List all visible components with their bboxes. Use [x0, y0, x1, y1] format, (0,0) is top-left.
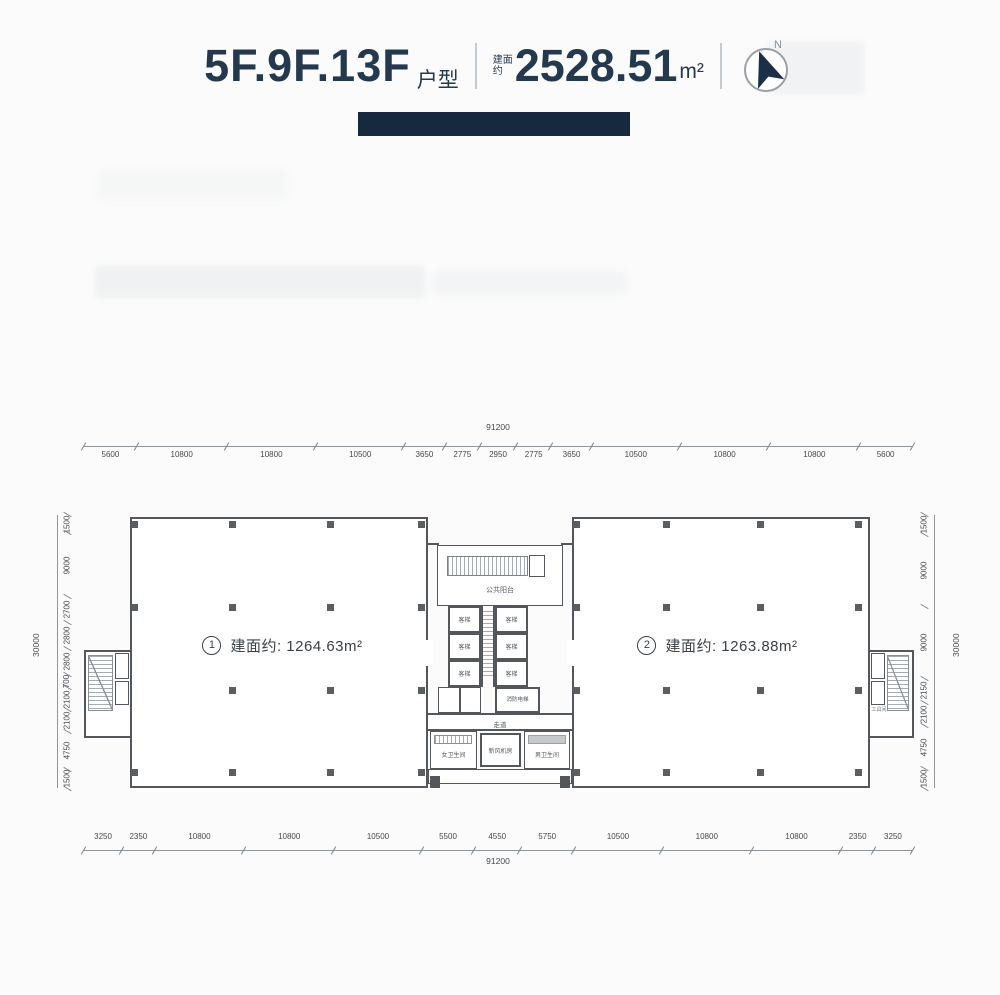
structural-column	[757, 604, 764, 611]
dimension-segment: 10800	[155, 832, 245, 841]
womens-restroom: 女卫生间	[430, 731, 477, 769]
stair-shaft-wall	[493, 606, 495, 687]
structural-column	[229, 687, 236, 694]
toilet-stalls	[528, 735, 566, 744]
pilaster	[560, 776, 570, 788]
dimension-segment: 3250	[874, 832, 912, 841]
mens-restroom-label: 男卫生间	[525, 750, 569, 759]
dimension-segment: 10500	[574, 832, 662, 841]
public-balcony: 公共阳台	[437, 545, 563, 606]
corridor: 走道	[428, 713, 572, 731]
structural-column	[855, 604, 862, 611]
dimension-segment: 10800	[752, 832, 842, 841]
north-compass-icon: N	[738, 37, 796, 95]
structural-column	[327, 769, 334, 776]
utility-room	[460, 687, 481, 713]
structural-column	[855, 769, 862, 776]
structural-column	[418, 521, 425, 528]
annex-elevator	[871, 681, 885, 705]
watermark	[432, 271, 627, 295]
dimension-segment: 10800	[662, 832, 752, 841]
dimension-segment: 2800	[59, 649, 75, 675]
passenger-elevator: 客梯	[495, 633, 528, 660]
dim-total-top: 91200	[84, 422, 912, 432]
unit1-number-badge: 1	[202, 636, 221, 655]
passenger-elevator: 客梯	[448, 606, 481, 633]
watermark	[95, 266, 425, 298]
dimension-segment: 5600	[859, 450, 912, 459]
dimension-segment: 3250	[84, 832, 122, 841]
dimension-segment: 5600	[84, 450, 137, 459]
dimension-segment: 10800	[137, 450, 227, 459]
structural-column	[131, 604, 138, 611]
total-area: 建面 约 2528.51 m²	[493, 40, 704, 92]
divider	[475, 43, 477, 89]
structural-column	[663, 521, 670, 528]
dimension-segment: 10500	[334, 832, 422, 841]
structural-column	[418, 604, 425, 611]
dim-line	[57, 515, 58, 788]
annex-elevator	[115, 681, 129, 705]
mens-restroom: 男卫生间	[524, 731, 570, 769]
structural-column	[131, 769, 138, 776]
dimension-segment: 2950	[480, 450, 516, 459]
dimension-segment: 2350	[841, 832, 873, 841]
fire-elevator: 消防电梯	[495, 687, 540, 713]
tool-room-label: 工具间	[871, 706, 887, 713]
dim-total-left: 30000	[31, 633, 41, 657]
compass-north-label: N	[774, 39, 782, 51]
dimension-segment: 9000	[916, 535, 932, 607]
structural-column	[663, 687, 670, 694]
floor-title: 5F.9F.13F户型	[204, 40, 459, 92]
structural-column	[573, 687, 580, 694]
balcony-box	[529, 555, 545, 577]
passenger-elevator: 客梯	[448, 633, 481, 660]
annex-room	[871, 653, 885, 679]
structural-column	[573, 769, 580, 776]
dim-line	[934, 515, 935, 788]
unit2-area-label: 2 建面约: 1263.88m²	[575, 630, 860, 660]
dimension-segment: 4750	[59, 732, 75, 770]
stair-run-line	[88, 655, 113, 711]
fresh-air-room: 新风机房	[480, 733, 521, 767]
structural-column	[757, 521, 764, 528]
structural-column	[327, 687, 334, 694]
dimension-segment: 10500	[592, 450, 680, 459]
unit2-number-badge: 2	[637, 636, 656, 655]
dimension-segment: 5750	[520, 832, 574, 841]
pilaster	[430, 776, 440, 788]
header: 5F.9F.13F户型 建面 约 2528.51 m² N	[0, 30, 1000, 102]
left-stair-annex	[84, 650, 132, 738]
total-area-unit: m²	[679, 60, 704, 84]
structural-column	[418, 687, 425, 694]
dim-total-bottom: 91200	[84, 856, 912, 866]
dimension-segment: 9000	[916, 607, 932, 679]
stair-run-line	[887, 655, 909, 711]
structural-column	[229, 521, 236, 528]
dimension-segment: 9000	[59, 533, 75, 597]
utility-room	[438, 687, 460, 713]
structural-column	[327, 604, 334, 611]
unit1-area-label: 1 建面约: 1264.63m²	[140, 630, 425, 660]
dimension-segment: 5500	[422, 832, 474, 841]
dim-line	[84, 850, 912, 851]
structural-column	[757, 687, 764, 694]
womens-restroom-label: 女卫生间	[431, 750, 476, 759]
passenger-elevator: 客梯	[495, 606, 528, 633]
dimension-segment: 10500	[316, 450, 404, 459]
right-stair-annex: 工具间	[868, 650, 914, 738]
dimension-segment: 2100	[916, 703, 932, 727]
dimension-segment: 2100	[59, 688, 75, 710]
wall	[561, 543, 574, 545]
dim-total-right: 30000	[951, 633, 961, 657]
dim-strip-left: 30000 1500900027002800280070021002100475…	[30, 515, 78, 788]
structural-column	[663, 604, 670, 611]
unit2-area-text: 建面约: 1263.88m²	[665, 635, 797, 656]
dimension-segment: 4750	[916, 726, 932, 768]
dimension-segment: 2800	[59, 623, 75, 649]
title-underline-bar	[358, 112, 630, 136]
divider	[720, 43, 722, 89]
dimension-segment: 2150	[916, 679, 932, 703]
dimension-segment: 1500	[916, 769, 932, 789]
dimension-segment: 2100	[59, 710, 75, 732]
structural-column	[855, 521, 862, 528]
structural-column	[229, 769, 236, 776]
structural-column	[855, 687, 862, 694]
passenger-elevator: 客梯	[495, 660, 528, 687]
total-area-value: 2528.51	[515, 40, 678, 92]
public-balcony-label: 公共阳台	[438, 585, 562, 595]
structural-column	[573, 604, 580, 611]
dimension-segment: 10800	[244, 832, 334, 841]
annex-room	[115, 653, 129, 679]
structural-column	[131, 521, 138, 528]
floorplan-page: 5F.9F.13F户型 建面 约 2528.51 m² N 91200 5600…	[0, 0, 1000, 995]
wall	[426, 543, 439, 545]
passenger-elevator: 客梯	[448, 660, 481, 687]
core-bottom-strip	[428, 769, 572, 784]
dimension-segment: 10800	[680, 450, 770, 459]
dimension-segment: 2700	[59, 597, 75, 623]
dimension-segment: 2775	[445, 450, 480, 459]
unit1-area-text: 建面约: 1264.63m²	[230, 635, 362, 656]
dim-strip-top: 5600108001080010500365027752950277536501…	[84, 440, 912, 474]
toilet-stalls	[434, 735, 472, 744]
dimension-segment: 10800	[769, 450, 859, 459]
dimension-segment: 2350	[122, 832, 154, 841]
dim-strip-right: 1500900090002150210047501500 30000	[914, 515, 962, 788]
dimension-segment: 2775	[516, 450, 551, 459]
core-stair-treads	[483, 611, 493, 679]
structural-column	[757, 769, 764, 776]
structural-column	[229, 604, 236, 611]
unit-type-label: 户型	[417, 69, 459, 92]
dimension-segment: 10800	[227, 450, 317, 459]
dimension-segment: 3650	[551, 450, 592, 459]
balcony-louver	[447, 556, 528, 576]
corridor-label: 走道	[428, 719, 572, 729]
dimension-segment: 4550	[474, 832, 520, 841]
area-prefix: 建面 约	[493, 55, 513, 78]
dimension-segment: 3650	[404, 450, 445, 459]
watermark	[98, 170, 288, 200]
dimension-segment: 1500	[916, 515, 932, 535]
floor-title-text: 5F.9F.13F	[204, 40, 411, 91]
dim-line	[84, 446, 912, 447]
fire-elevator-label: 消防电梯	[506, 697, 530, 703]
structural-column	[327, 521, 334, 528]
dimension-segment: 1500	[59, 770, 75, 788]
structural-column	[573, 521, 580, 528]
structural-column	[663, 769, 670, 776]
fresh-air-room-label: 新风机房	[488, 746, 512, 755]
structural-column	[418, 769, 425, 776]
dimension-segment: 1500	[59, 515, 75, 533]
